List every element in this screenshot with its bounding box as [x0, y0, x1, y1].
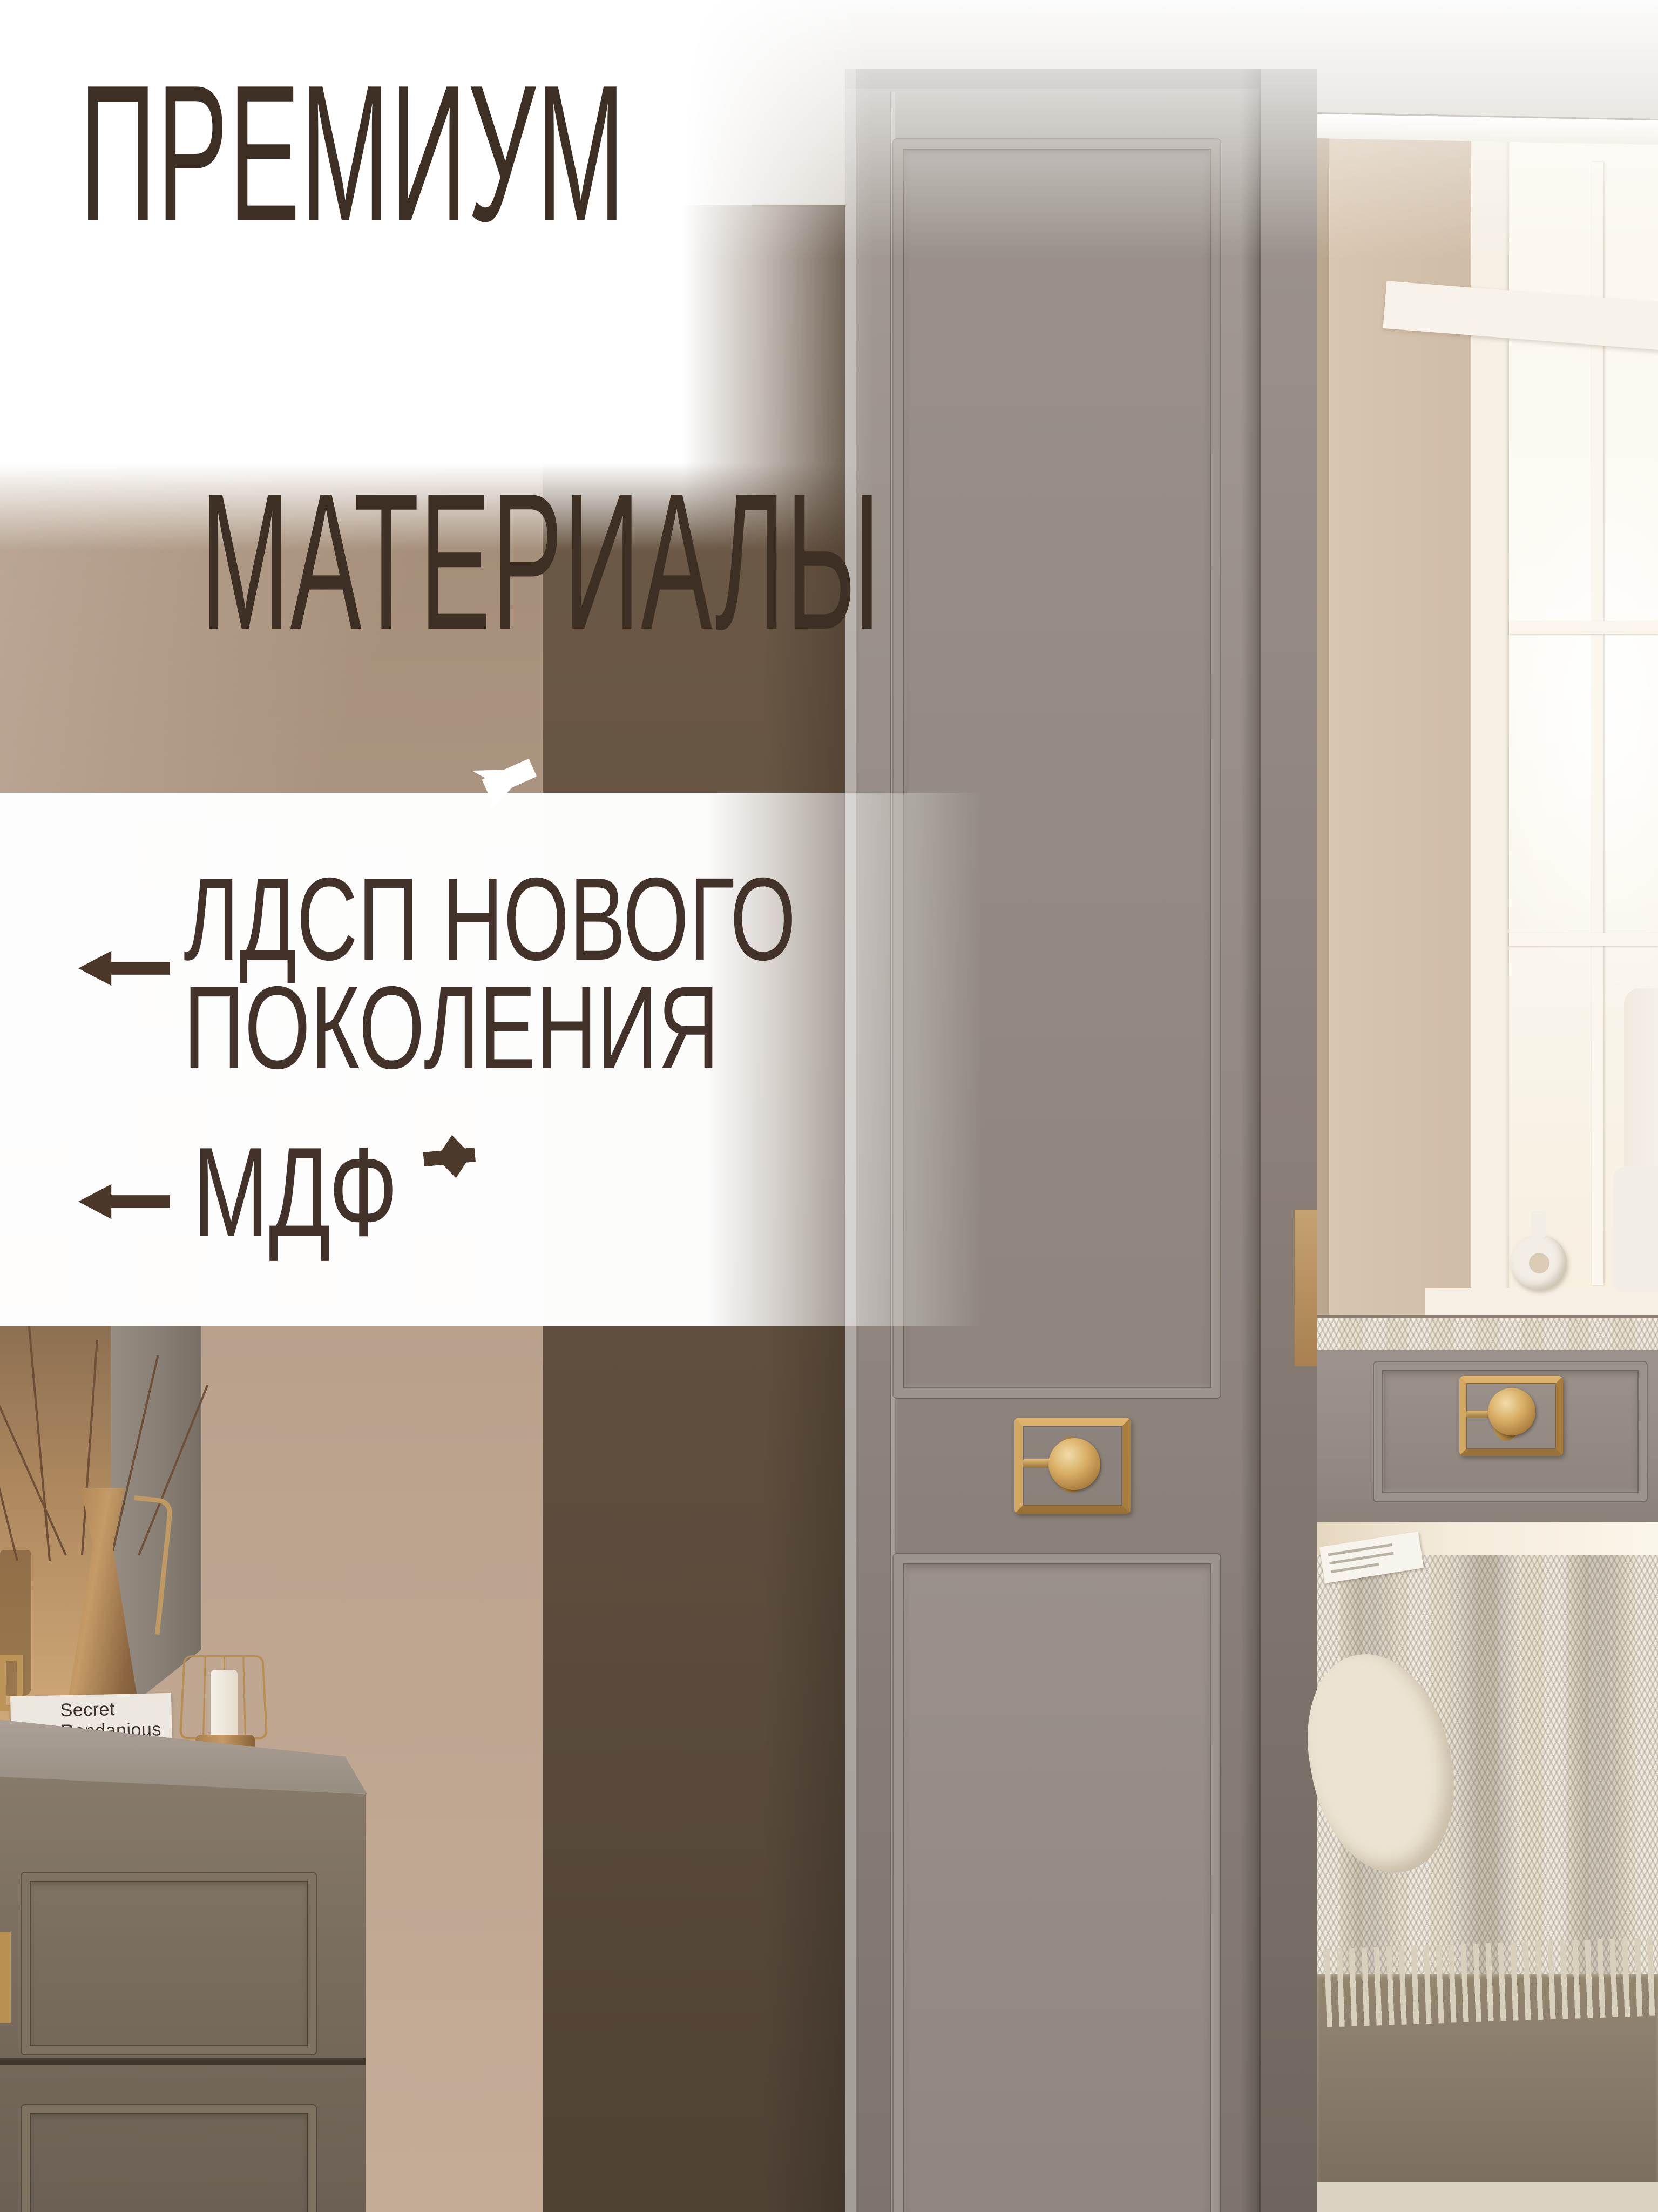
drawer-handle-knob [1488, 1388, 1535, 1435]
mirror-left-edge [1317, 135, 1329, 1320]
wardrobe-handle-knob [1048, 1438, 1100, 1490]
wood-reflection-sliver [1295, 1210, 1317, 1366]
cushion-corner [1613, 1166, 1658, 1292]
cage-wire [242, 1657, 246, 1737]
door-panel-lower [894, 1554, 1220, 2212]
window-mullion-horizontal [1509, 621, 1658, 634]
throw-blanket-strip [1317, 1315, 1658, 1353]
label-ldsp-line1: ЛДСП НОВОГО [184, 861, 796, 979]
donut-vase-hole [1529, 1253, 1549, 1273]
wardrobe-side-seam [1259, 69, 1261, 2212]
dresser-drawer-molding [22, 1873, 316, 2054]
window-sill [1425, 1288, 1658, 1317]
title-line2: МАТЕРИАЛЫ [200, 453, 881, 670]
dresser-drawer-molding [22, 2105, 316, 2212]
page-title: ПРЕМИУМ МАТЕРИАЛЫ [79, 51, 881, 664]
candle [211, 1670, 238, 1739]
product-photo-card: Secret Randanious TORA NACAH ПРЕМИУМ МАТ… [0, 0, 1658, 2212]
donut-vase-neck [1531, 1211, 1546, 1238]
dresser-handle-partial [0, 1932, 11, 2023]
door-right-shadow [1241, 69, 1259, 2212]
cage-wire [202, 1657, 206, 1737]
window-mullion-horizontal [1509, 933, 1658, 946]
dresser-drawer-gap [0, 2058, 366, 2065]
label-ldsp-line2: ПОКОЛЕНИЯ [184, 969, 719, 1087]
throw-fringe [1324, 1937, 1658, 2027]
label-mdf: МДФ [193, 1128, 398, 1255]
magazine-text-line [1331, 1563, 1379, 1573]
wardrobe-side-edge [1259, 69, 1317, 2212]
carpet [1317, 2182, 1658, 2212]
title-line1: ПРЕМИУМ [79, 45, 626, 262]
